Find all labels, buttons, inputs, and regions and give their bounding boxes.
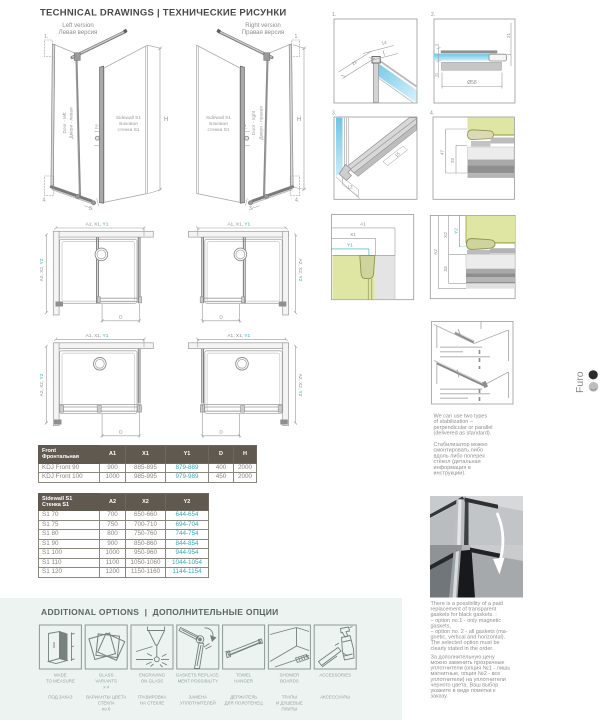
svg-text:1.: 1. [332,12,336,18]
svg-text:A1, X1, Y1: A1, X1, Y1 [86,333,109,339]
svg-text:X2: X2 [443,232,449,238]
svg-text:TO MEASURE: TO MEASURE [46,679,75,684]
svg-text:A2: A2 [433,249,439,255]
svg-text:TECHNICAL DRAWINGS | ТЕХНИЧЕ: TECHNICAL DRAWINGS | ТЕХНИЧЕСКИЕ РИСУНКИ [40,8,286,19]
svg-text:A1, X1, Y1: A1, X1, Y1 [86,222,109,228]
svg-text:Ø58: Ø58 [467,80,477,86]
svg-text:ЗАМЕНА: ЗАМЕНА [189,695,207,700]
svg-text:(delivered as standard).: (delivered as standard). [434,431,492,437]
svg-text:31: 31 [434,73,438,77]
svg-text:H: H [297,117,301,123]
svg-text:A2, X2, Y2: A2, X2, Y2 [39,373,45,396]
svg-text:A1, X1, Y1: A1, X1, Y1 [227,222,250,228]
svg-text:СТЕКЛА: СТЕКЛА [98,701,115,706]
svg-text:ВАРИАНТЫ ЦВЕТА: ВАРИАНТЫ ЦВЕТА [86,695,126,700]
svg-text:1.: 1. [295,34,299,40]
svg-text:Furo: Furo [574,371,586,393]
svg-text:3.: 3. [89,206,93,212]
svg-text:X1: X1 [350,232,356,238]
svg-text:НА СТЕКЛЕ: НА СТЕКЛЕ [140,701,164,706]
svg-text:A1, X1, Y1: A1, X1, Y1 [227,333,250,339]
svg-text:х 4: х 4 [103,685,109,690]
svg-text:A2, X2, Y2: A2, X2, Y2 [39,258,45,281]
svg-text:clearly stated in the order.: clearly stated in the order. [431,646,494,652]
svg-text:D: D [119,429,123,435]
svg-text:Sidewall S1: Sidewall S1 [116,115,141,121]
svg-text:1.: 1. [44,34,48,40]
svg-text:ГРАВИРОВКА: ГРАВИРОВКА [138,695,167,700]
svg-text:ПОД ЗАКАЗ: ПОД ЗАКАЗ [48,695,73,700]
svg-text:АКСЕССУАРЫ: АКСЕССУАРЫ [320,695,350,700]
svg-text:VARIANTS: VARIANTS [95,679,117,684]
svg-text:BOARDS: BOARDS [280,679,299,684]
svg-text:MENT POSSIBILITY: MENT POSSIBILITY [178,679,218,684]
svg-text:13: 13 [348,185,354,190]
svg-text:УПЛОТНИТЕЛЕЙ: УПЛОТНИТЕЛЕЙ [180,701,216,706]
svg-text:GLASS: GLASS [99,673,114,678]
svg-text:Y2: Y2 [454,228,460,234]
svg-text:H: H [164,117,168,123]
svg-text:D: D [119,314,123,320]
svg-text:ДЛЯ ПОЛОТЕНЕЦ: ДЛЯ ПОЛОТЕНЕЦ [225,701,264,706]
svg-text:4.: 4. [295,198,299,204]
svg-text:Боковая: Боковая [209,121,228,127]
svg-text:Двери - правая: Двери - правая [259,106,265,140]
svg-text:Sidewall S1: Sidewall S1 [206,115,231,121]
svg-text:3: 3 [434,44,438,46]
svg-text:A2, X2, Y2: A2, X2, Y2 [297,259,303,282]
svg-text:21: 21 [506,32,511,38]
svg-text:Door - left: Door - left [62,112,68,134]
svg-text:2.: 2. [431,12,435,18]
svg-text:4.: 4. [43,198,47,204]
svg-text:GASKETS REPLACE-: GASKETS REPLACE- [176,673,220,678]
svg-text:A1: A1 [360,222,366,228]
svg-text:2.: 2. [95,125,99,131]
svg-text:ACCESSORIES: ACCESSORIES [319,673,351,678]
svg-text:3.: 3. [249,206,253,212]
svg-text:ON GLASS: ON GLASS [141,679,164,684]
svg-text:Левая версия: Левая версия [59,29,98,36]
svg-text:Y1: Y1 [347,243,353,249]
svg-text:D: D [219,429,223,435]
svg-text:33: 33 [450,157,455,163]
svg-text:Door - right: Door - right [251,110,257,135]
svg-text:ПЛИТЫ: ПЛИТЫ [282,707,298,712]
svg-text:заказу.: заказу. [431,694,449,700]
svg-text:ENGRAVING: ENGRAVING [139,673,166,678]
svg-text:TOWEL: TOWEL [236,673,252,678]
svg-text:ДЕРЖАТЕЛЬ: ДЕРЖАТЕЛЬ [230,695,257,700]
svg-text:2.: 2. [244,125,248,131]
svg-text:33: 33 [443,266,449,272]
svg-text:ТРАПЫ: ТРАПЫ [282,695,297,700]
svg-text:4.: 4. [430,111,434,117]
svg-text:D: D [219,314,223,320]
svg-text:стенка S1: стенка S1 [208,127,230,133]
svg-text:SHOWER: SHOWER [280,673,300,678]
svg-text:MADE: MADE [54,673,67,678]
svg-text:И ДУШЕВЫЕ: И ДУШЕВЫЕ [276,701,303,706]
svg-text:по 6: по 6 [102,707,111,712]
svg-text:47: 47 [440,149,445,155]
svg-text:Правая версия: Правая версия [242,29,284,36]
svg-text:инструкции).: инструкции). [434,471,467,477]
svg-text:HANGER: HANGER [234,679,253,684]
svg-text:Боковая: Боковая [119,121,138,127]
svg-text:стенка S1: стенка S1 [118,127,140,133]
svg-text:Двери - левая: Двери - левая [69,107,75,139]
svg-text:3.: 3. [332,111,336,117]
svg-text:A2, X2, Y2: A2, X2, Y2 [297,374,303,397]
